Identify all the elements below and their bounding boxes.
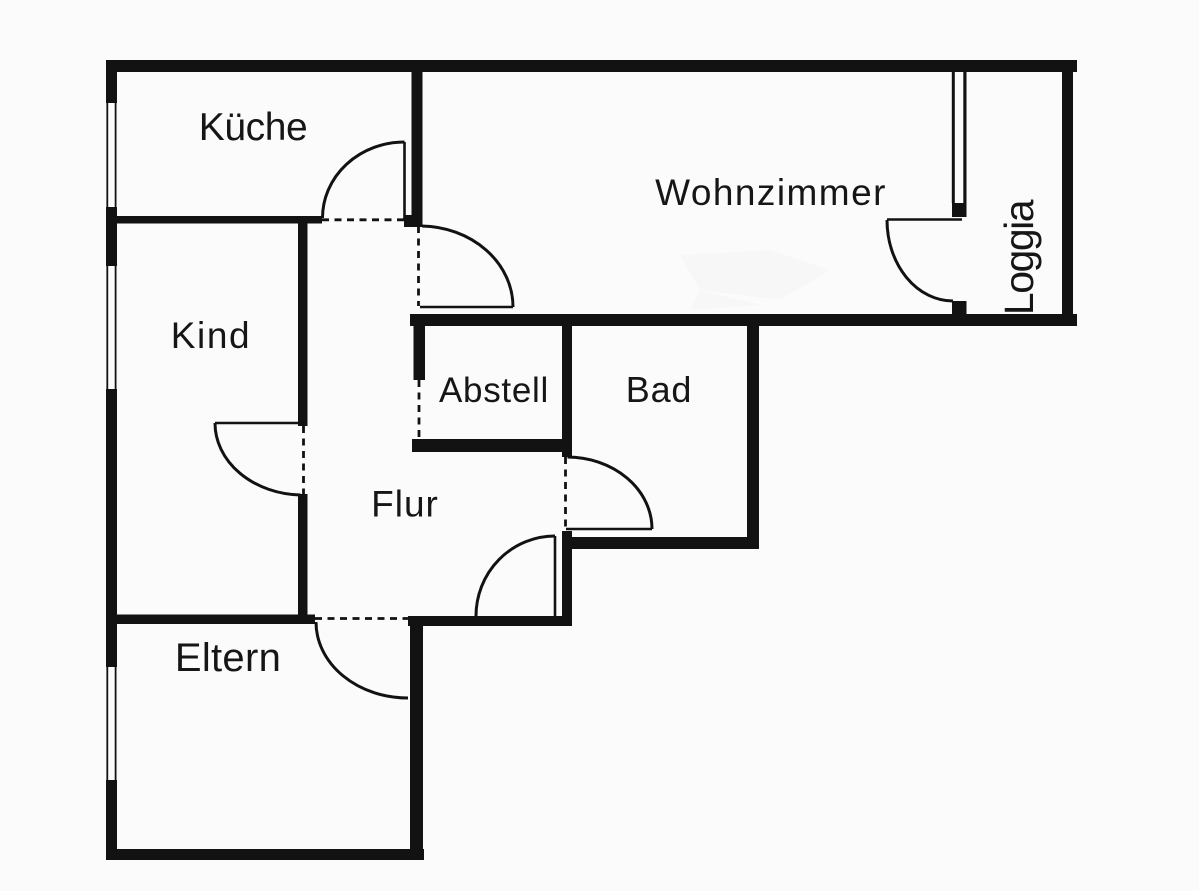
svg-text:Wohnzimmer: Wohnzimmer (655, 172, 887, 213)
svg-text:Bad: Bad (626, 369, 692, 410)
svg-text:Küche: Küche (199, 106, 308, 149)
svg-text:Eltern: Eltern (175, 636, 281, 680)
svg-text:Abstell: Abstell (439, 371, 549, 410)
svg-text:Loggia: Loggia (996, 199, 1042, 315)
svg-text:Kind: Kind (171, 315, 251, 356)
svg-text:Flur: Flur (371, 484, 439, 525)
